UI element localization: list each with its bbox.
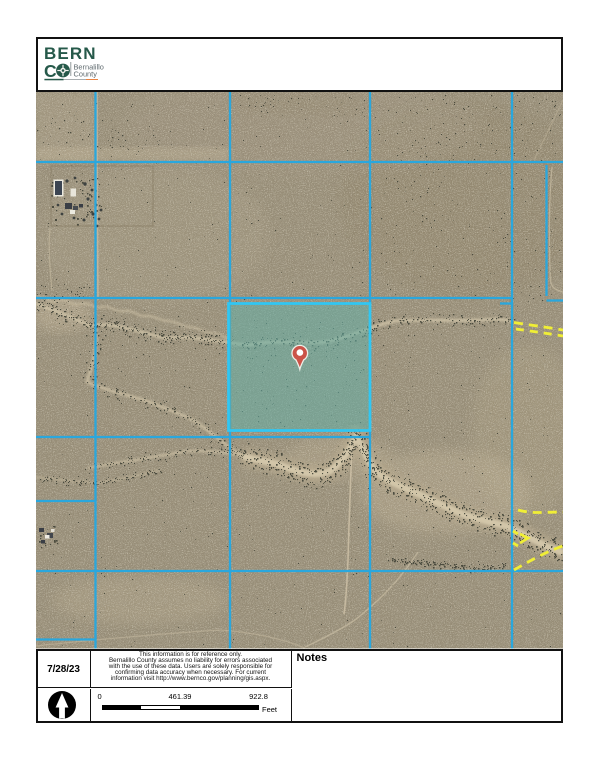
svg-text:C: C (44, 61, 57, 81)
svg-text:County: County (74, 70, 98, 79)
